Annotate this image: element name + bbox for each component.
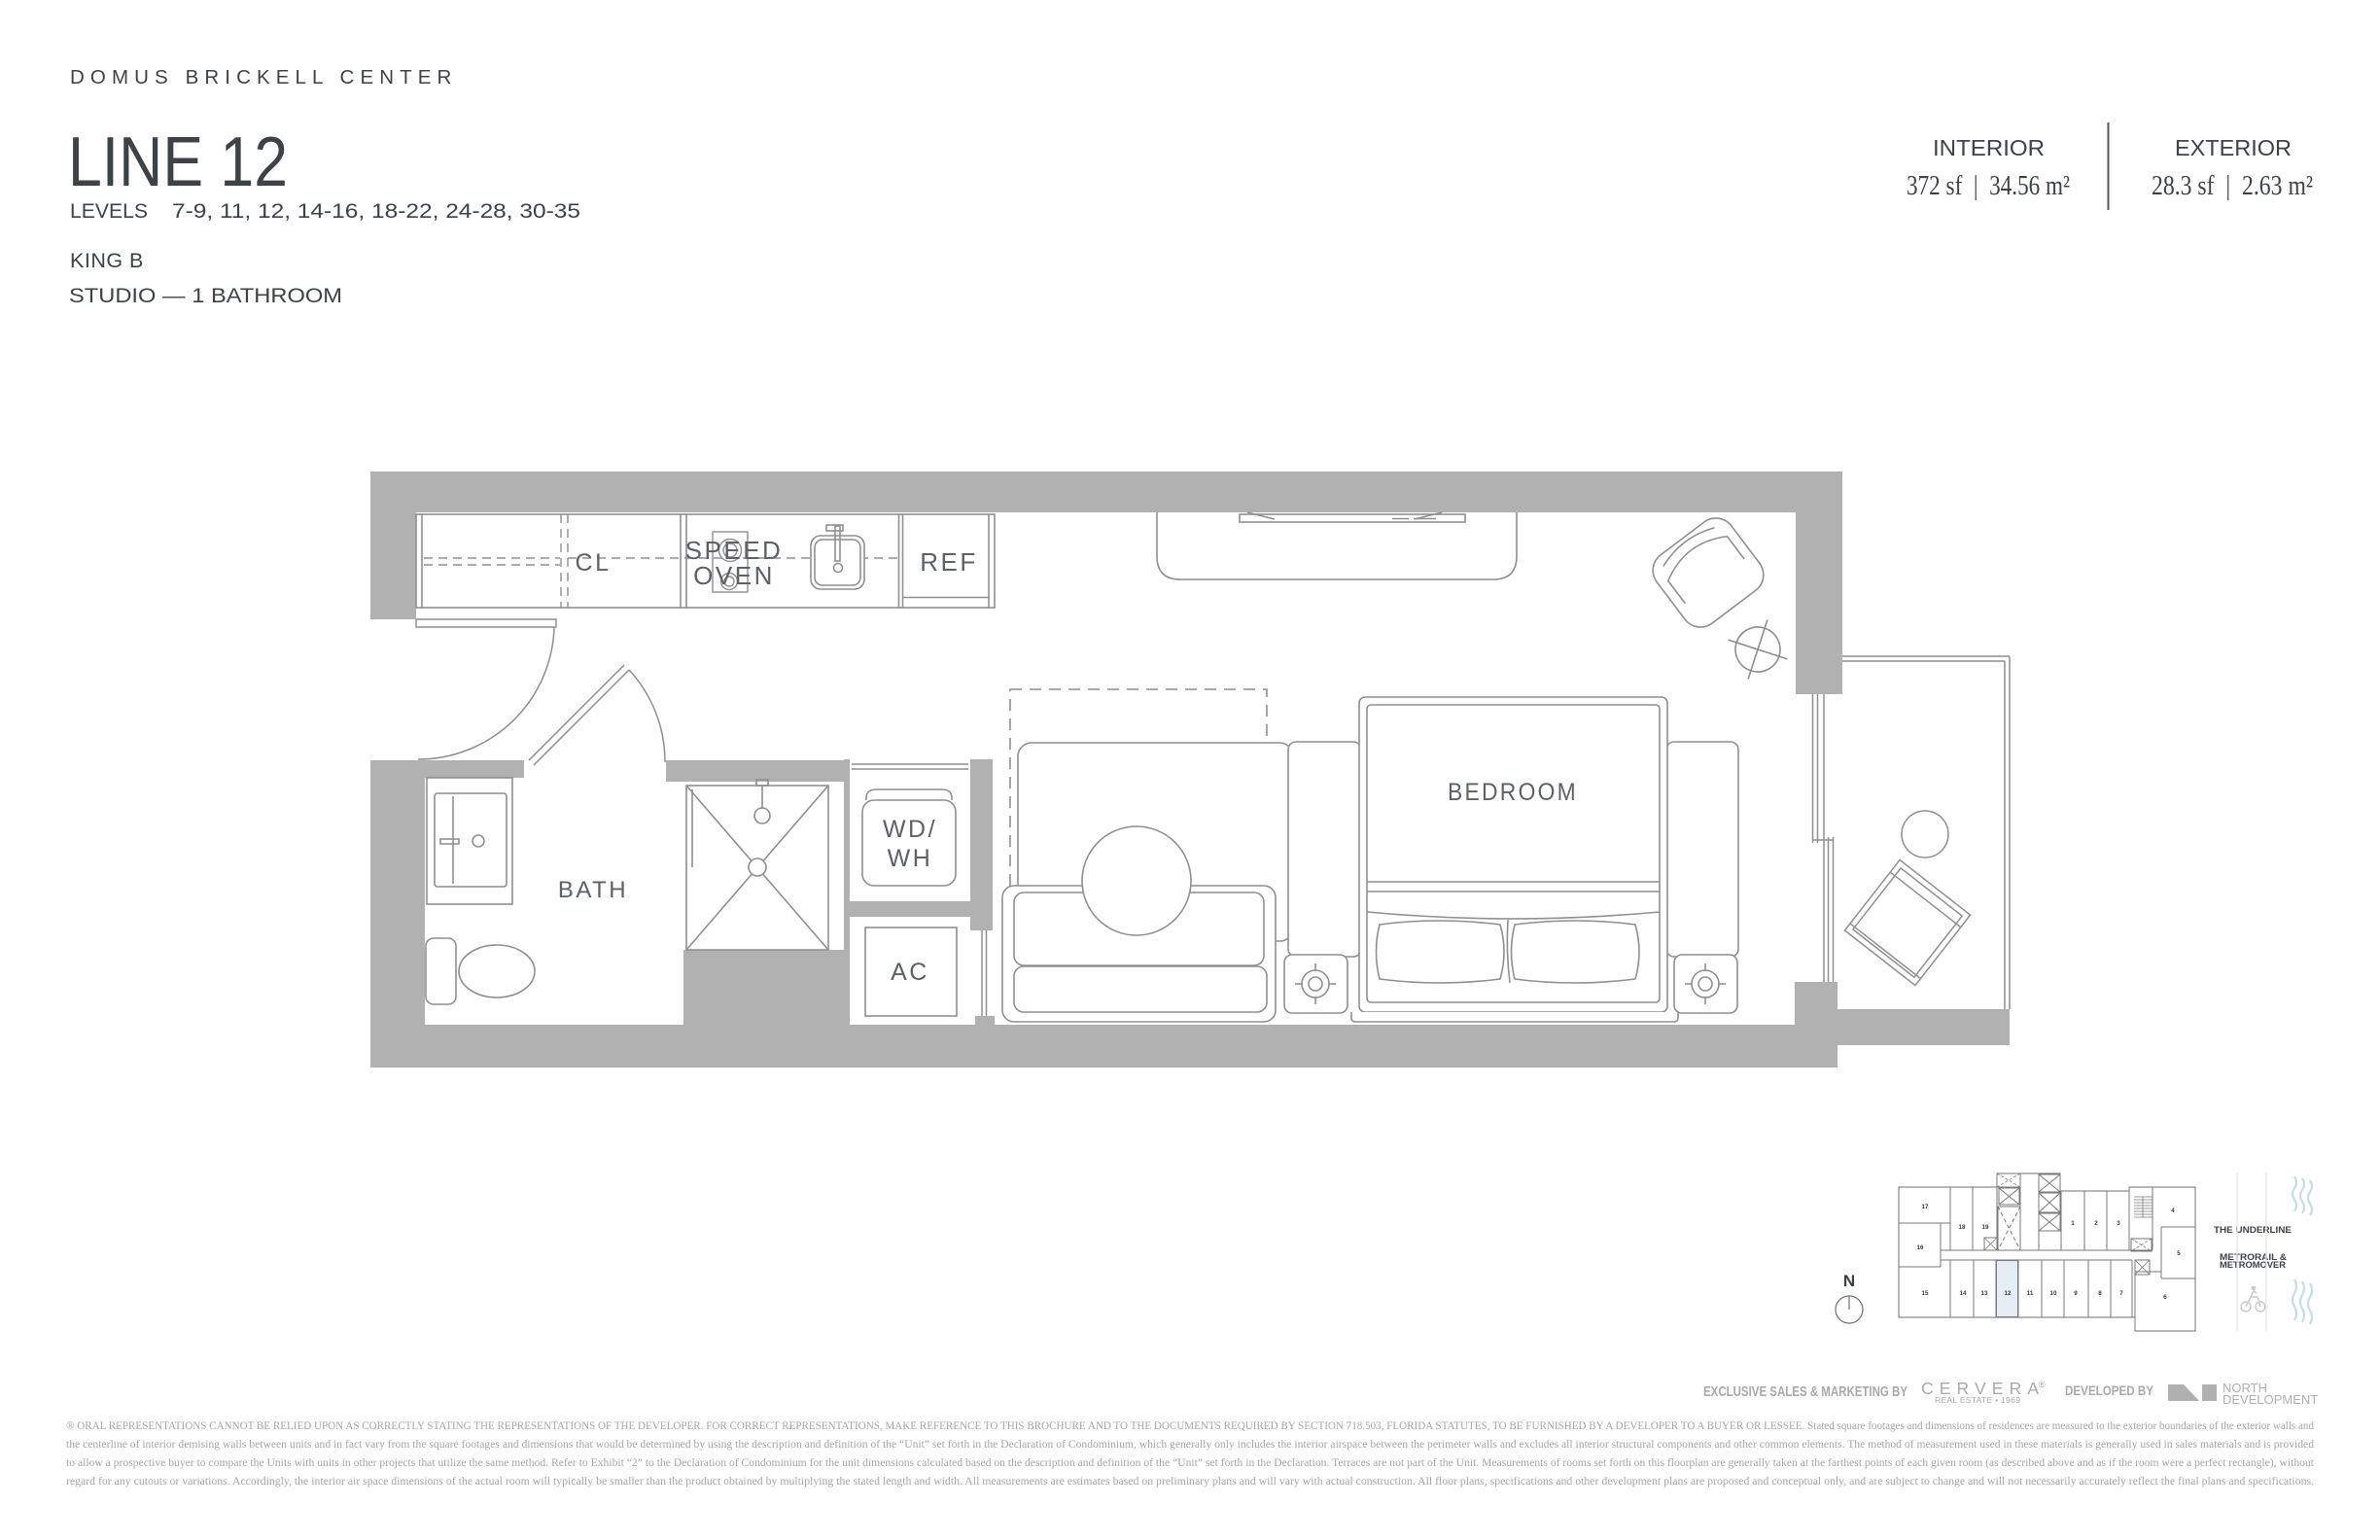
svg-text:to allow a prospective buyer t: to allow a prospective buyer to compare …	[66, 1455, 2315, 1469]
svg-text:WH: WH	[888, 845, 933, 872]
svg-text:6: 6	[2163, 1294, 2167, 1301]
svg-text:18: 18	[1959, 1224, 1966, 1231]
svg-text:11: 11	[2027, 1290, 2034, 1297]
svg-text:10: 10	[2050, 1290, 2057, 1297]
svg-text:7: 7	[2119, 1290, 2123, 1297]
svg-text:13: 13	[1981, 1290, 1988, 1297]
svg-text:REF: REF	[920, 547, 978, 577]
svg-text:16: 16	[1917, 1244, 1924, 1251]
svg-text:EXCLUSIVE SALES & MARKETING BY: EXCLUSIVE SALES & MARKETING BY	[1703, 1384, 1907, 1400]
svg-text:regard for any cutouts or vari: regard for any cutouts or variations. Ac…	[66, 1474, 2314, 1487]
svg-text:372 sf | 34.56 m²: 372 sf | 34.56 m²	[1907, 170, 2070, 201]
svg-text:LINE 12: LINE 12	[68, 123, 288, 201]
svg-text:BEDROOM: BEDROOM	[1448, 779, 1578, 806]
svg-text:12: 12	[2005, 1290, 2012, 1297]
svg-text:14: 14	[1960, 1290, 1967, 1297]
svg-text:DOMUS BRICKELL CENTER: DOMUS BRICKELL CENTER	[70, 66, 457, 88]
svg-text:2: 2	[2094, 1220, 2098, 1227]
svg-text:THE UNDERLINE: THE UNDERLINE	[2214, 1225, 2292, 1236]
svg-text:N: N	[1843, 1272, 1855, 1290]
svg-text:8: 8	[2098, 1290, 2102, 1297]
svg-text:KING B: KING B	[70, 249, 144, 272]
svg-text:7-9, 11, 12, 14-16, 18-22, 24-: 7-9, 11, 12, 14-16, 18-22, 24-28, 30-35	[172, 200, 580, 223]
svg-text:OVEN: OVEN	[693, 561, 775, 590]
svg-text:28.3 sf | 2.63 m²: 28.3 sf | 2.63 m²	[2152, 170, 2313, 201]
svg-text:BATH: BATH	[558, 877, 628, 903]
svg-text:1: 1	[2071, 1220, 2075, 1227]
svg-text:WD/: WD/	[883, 816, 937, 843]
svg-text:3: 3	[2117, 1220, 2120, 1227]
svg-text:DEVELOPED BY: DEVELOPED BY	[2065, 1383, 2153, 1398]
svg-text:AC: AC	[891, 959, 929, 986]
svg-text:15: 15	[1922, 1290, 1929, 1297]
svg-text:® ORAL REPRESENTATIONS CANNOT: ® ORAL REPRESENTATIONS CANNOT BE RELIED …	[66, 1418, 2314, 1432]
svg-text:STUDIO — 1 BATHROOM: STUDIO — 1 BATHROOM	[69, 284, 342, 307]
svg-text:INTERIOR: INTERIOR	[1933, 135, 2045, 160]
svg-text:EXTERIOR: EXTERIOR	[2175, 135, 2292, 160]
svg-text:DEVELOPMENT: DEVELOPMENT	[2222, 1392, 2318, 1407]
svg-text:19: 19	[1982, 1224, 1989, 1231]
svg-text:LEVELS: LEVELS	[70, 200, 148, 223]
svg-text:5: 5	[2177, 1250, 2181, 1257]
svg-text:CL: CL	[576, 549, 612, 577]
svg-text:17: 17	[1922, 1204, 1929, 1210]
svg-text:4: 4	[2171, 1207, 2175, 1214]
svg-text:REAL ESTATE • 1969: REAL ESTATE • 1969	[1935, 1395, 2020, 1405]
svg-text:9: 9	[2074, 1290, 2078, 1297]
svg-text:the centerline of interior dem: the centerline of interior demising wall…	[66, 1437, 2314, 1451]
svg-text:®: ®	[2039, 1380, 2046, 1389]
svg-text:METROMOVER: METROMOVER	[2220, 1260, 2286, 1271]
